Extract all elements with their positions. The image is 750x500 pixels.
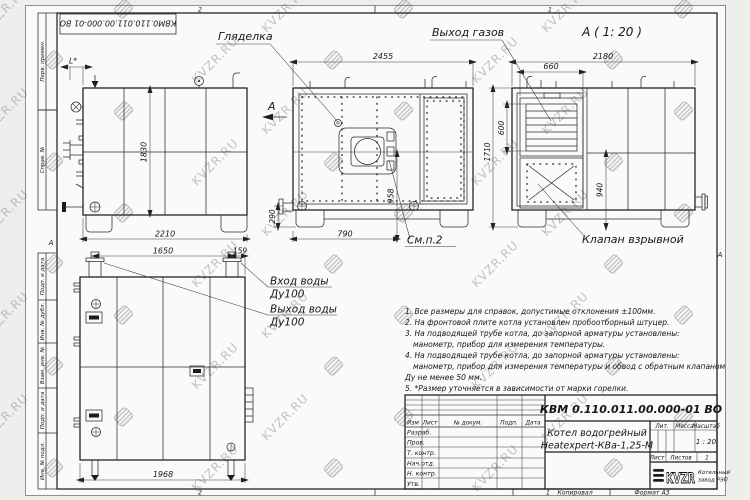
- tb-col-dokum: № докум.: [453, 421, 483, 427]
- dim-front-nozzle: 290: [268, 209, 277, 224]
- dim-top-nozzle-offset: 159: [233, 247, 248, 256]
- tb-doc-number: КВМ 0.110.011.00.000-01 ВО: [540, 403, 722, 416]
- tb-product-name-2: Heatexpert-КВа-1,25-М: [541, 441, 653, 452]
- callout-gas-outlet: Выход газов: [432, 26, 504, 39]
- note-line: 3. На подводящей трубе котла, до запорно…: [405, 329, 680, 338]
- format-label: Формат А3: [634, 490, 669, 497]
- kvzr-logo-text: KVZR: [666, 471, 695, 487]
- tb-product-name-1: Котел водогрейный: [547, 428, 647, 439]
- note-line: 5. *Размер уточняется в зависимости от м…: [405, 384, 628, 393]
- dim-rear-outlet-width: 660: [543, 62, 558, 71]
- dim-rear-height: 1710: [483, 142, 492, 161]
- tb-row-nkontr: Н. контр.: [407, 471, 437, 478]
- copied-label: Копировал: [557, 490, 592, 497]
- tb-sheets-label: Листов: [669, 456, 692, 462]
- kvzr-logo: KVZR Котельный завод РЭП: [653, 469, 731, 487]
- zone-number-bottom-1: 1: [546, 490, 550, 497]
- callout-see-note2: См.п.2: [407, 235, 443, 247]
- tb-col-list: Лист: [422, 421, 438, 427]
- tb-scale-value: 1 : 20: [696, 438, 717, 446]
- zone-number-top-2: 2: [198, 7, 202, 14]
- view-rear: А ( 1: 20 ): [430, 25, 708, 246]
- note-line: 1. Все размеры для справок, допустимые о…: [405, 307, 655, 316]
- zone-number-bottom-2: 2: [198, 490, 202, 497]
- tb-scale-label: Масштаб: [692, 424, 720, 430]
- view-side: А L* 1830 2210: [62, 57, 287, 243]
- drawing-page: KVZR.RUKVZR.RUKVZR.RUKVZR.RUKVZR.RUKVZR.…: [0, 0, 750, 500]
- tb-row-nachotd: Нач.отд.: [407, 461, 435, 468]
- view-front: Гляделка 2455 958: [216, 30, 473, 247]
- tb-col-izm: Изм: [407, 421, 419, 427]
- kvzr-logo-caption-1: Котельный: [698, 470, 731, 476]
- callout-explosion-valve: Клапан взрывной: [582, 233, 684, 246]
- margin-label-sprav-n: Справ. №: [40, 146, 46, 173]
- notes-block: 1. Все размеры для справок, допустимые о…: [404, 307, 726, 393]
- dim-front-width: 2455: [373, 52, 393, 61]
- tb-row-utv: Утв.: [407, 481, 420, 488]
- dim-top-nozzle-span: 1650: [153, 247, 173, 256]
- margin-label-inv-dubl: Инв. № дубл.: [40, 302, 46, 340]
- dim-side-width: 2210: [155, 230, 175, 239]
- note-line: Ду не менее 50 мм.: [404, 373, 482, 382]
- zone-letter-left: А: [48, 239, 54, 247]
- callout-sight-glass: Гляделка: [218, 30, 273, 43]
- dim-side-height: 1830: [140, 142, 149, 162]
- drawing-svg: 2 1 2 1 Копировал Формат А3 А А Перв. пр…: [0, 0, 750, 500]
- dim-l-star: L*: [69, 57, 77, 66]
- view-a-title: А ( 1: 20 ): [581, 25, 642, 39]
- zone-letter-right: А: [717, 251, 723, 259]
- tb-col-data: Дата: [524, 421, 540, 427]
- title-block: Изм Лист № докум. Подп. Дата Разраб. Про…: [405, 395, 731, 489]
- callout-water-inlet: Вход воды: [270, 276, 329, 288]
- callout-water-outlet-dn: Ду100: [269, 317, 305, 329]
- tb-row-tkontr: Т. контр.: [407, 450, 436, 457]
- dim-front-burner-x: 790: [337, 230, 352, 239]
- kvzr-logo-caption-2: завод РЭП: [698, 478, 728, 484]
- tb-lit-label: Лит.: [654, 424, 669, 430]
- note-line: 2. На фронтовой плите котла установлен п…: [405, 318, 669, 327]
- callout-water-inlet-dn: Ду100: [269, 289, 305, 301]
- margin-label-perv-primen: Перв. примен.: [40, 40, 46, 82]
- dim-rear-width: 2180: [593, 52, 613, 61]
- note-line: манометр, прибор для измерения температу…: [413, 340, 605, 349]
- margin-label-vzam-inv: Взам. инв. №: [40, 347, 46, 385]
- margin-label-inv-podl: Инв. № подл.: [40, 442, 46, 480]
- view-top: 1650 159 1968 Вход воды Ду100 Выход воды…: [74, 247, 337, 484]
- tb-sheet-label: Лист: [649, 456, 665, 462]
- tb-col-podp: Подп.: [500, 421, 518, 427]
- note-line: манометр, прибор для измерения температу…: [413, 362, 726, 371]
- section-arrow-letter: А: [267, 100, 276, 113]
- tb-sheets-value: 1: [705, 456, 709, 462]
- note-line: 4. На подводящей трубе котла, до запорно…: [405, 351, 680, 360]
- margin-label-podp-data-2: Подп. и дата: [40, 391, 46, 429]
- callout-water-outlet: Выход воды: [270, 304, 337, 316]
- dim-rear-outlet-height: 600: [497, 121, 506, 136]
- dim-rear-valve-height: 940: [596, 183, 605, 198]
- margin-label-podp-data-1: Подп. и дата: [40, 257, 46, 295]
- dim-front-burner-height: 958: [387, 188, 396, 203]
- dim-top-length: 1968: [153, 470, 173, 479]
- tb-row-razrab: Разраб.: [407, 429, 431, 437]
- sheet-frame: 2 1 2 1 Копировал Формат А3 А А Перв. пр…: [26, 6, 726, 497]
- tb-row-prov: Пров.: [407, 440, 425, 447]
- stamp-doc-number: КВМ0.110.011.00.000-01 ВО: [60, 19, 177, 28]
- zone-number-top-1: 1: [548, 7, 552, 14]
